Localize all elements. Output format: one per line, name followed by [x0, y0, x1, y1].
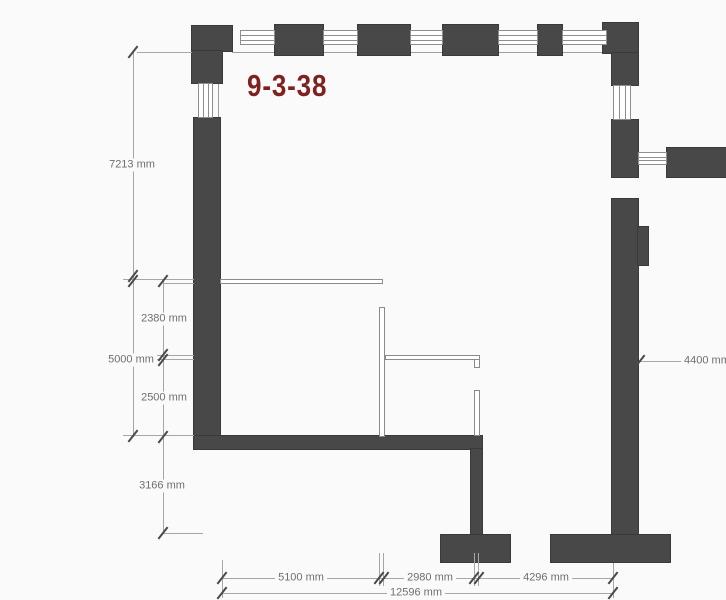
partition-vertical-right — [474, 390, 480, 436]
dim-label-left-lower: 5000 mm — [105, 354, 157, 367]
dim-label-below-offset: 3166 mm — [136, 480, 188, 493]
window-left-wall — [198, 83, 213, 118]
wall-left — [194, 118, 220, 449]
unit-number-label: 9-3-38 — [247, 68, 327, 104]
dim-label-inner-lower: 2500 mm — [138, 392, 190, 405]
wall-right-lower — [612, 199, 638, 535]
wall-top-pier-3 — [358, 25, 410, 55]
extension-line-bottom-mid2b — [478, 553, 479, 586]
wall-corner-pier-top-right — [603, 23, 638, 53]
wall-bottom-exterior-left — [441, 535, 510, 562]
partition-door-jamb-hook — [474, 359, 480, 368]
window-right-wing — [638, 152, 667, 165]
floor-plan-canvas: 7213 mm 2380 mm 5000 mm 2500 mm 3166 mm … — [0, 0, 726, 600]
dim-label-bottom-middle: 2980 mm — [404, 572, 456, 585]
wall-corner-pier-top-left — [192, 26, 232, 51]
window-top-3 — [410, 30, 443, 45]
wall-bottom-exterior-right — [551, 535, 670, 562]
wall-top-pier-2 — [275, 25, 323, 55]
dimension-line-left-outer — [133, 52, 134, 437]
wall-vertical-lower — [471, 449, 482, 535]
wall-right-pilaster-bump — [638, 227, 648, 265]
wall-corner-pier-top-right-lower — [612, 53, 638, 85]
dim-label-bottom-left: 5100 mm — [275, 572, 327, 585]
dim-label-bottom-total: 12596 mm — [387, 587, 445, 600]
window-right-wall — [613, 85, 631, 120]
wall-top-pier-4 — [443, 25, 498, 55]
dimension-line-right-wall — [640, 361, 681, 362]
extension-line-top — [137, 52, 192, 53]
window-top-4 — [498, 30, 538, 45]
dim-label-right-wall: 4400 mm — [682, 355, 726, 368]
wall-right-wing-pier — [667, 148, 726, 177]
extension-line-bottom-mid1b — [383, 553, 384, 586]
left-wall-inner-face-line — [218, 83, 219, 118]
wall-right-upper — [612, 120, 638, 177]
dim-label-left-total: 7213 mm — [106, 159, 158, 172]
partition-horizontal-lower — [385, 355, 480, 360]
partition-horizontal-upper — [220, 279, 383, 284]
dim-label-bottom-right: 4296 mm — [520, 572, 572, 585]
partition-vertical-left — [379, 307, 385, 437]
wall-bottom-interior — [194, 436, 482, 449]
dim-label-inner-upper: 2380 mm — [138, 313, 190, 326]
window-top-2 — [323, 30, 358, 45]
extension-line-mid1b — [163, 283, 194, 284]
window-top-1 — [240, 30, 275, 45]
wall-top-pier-5 — [538, 25, 562, 55]
wall-corner-pier-top-left-lower — [192, 51, 222, 83]
window-top-5 — [562, 30, 607, 45]
extension-line-3166 — [163, 533, 203, 534]
